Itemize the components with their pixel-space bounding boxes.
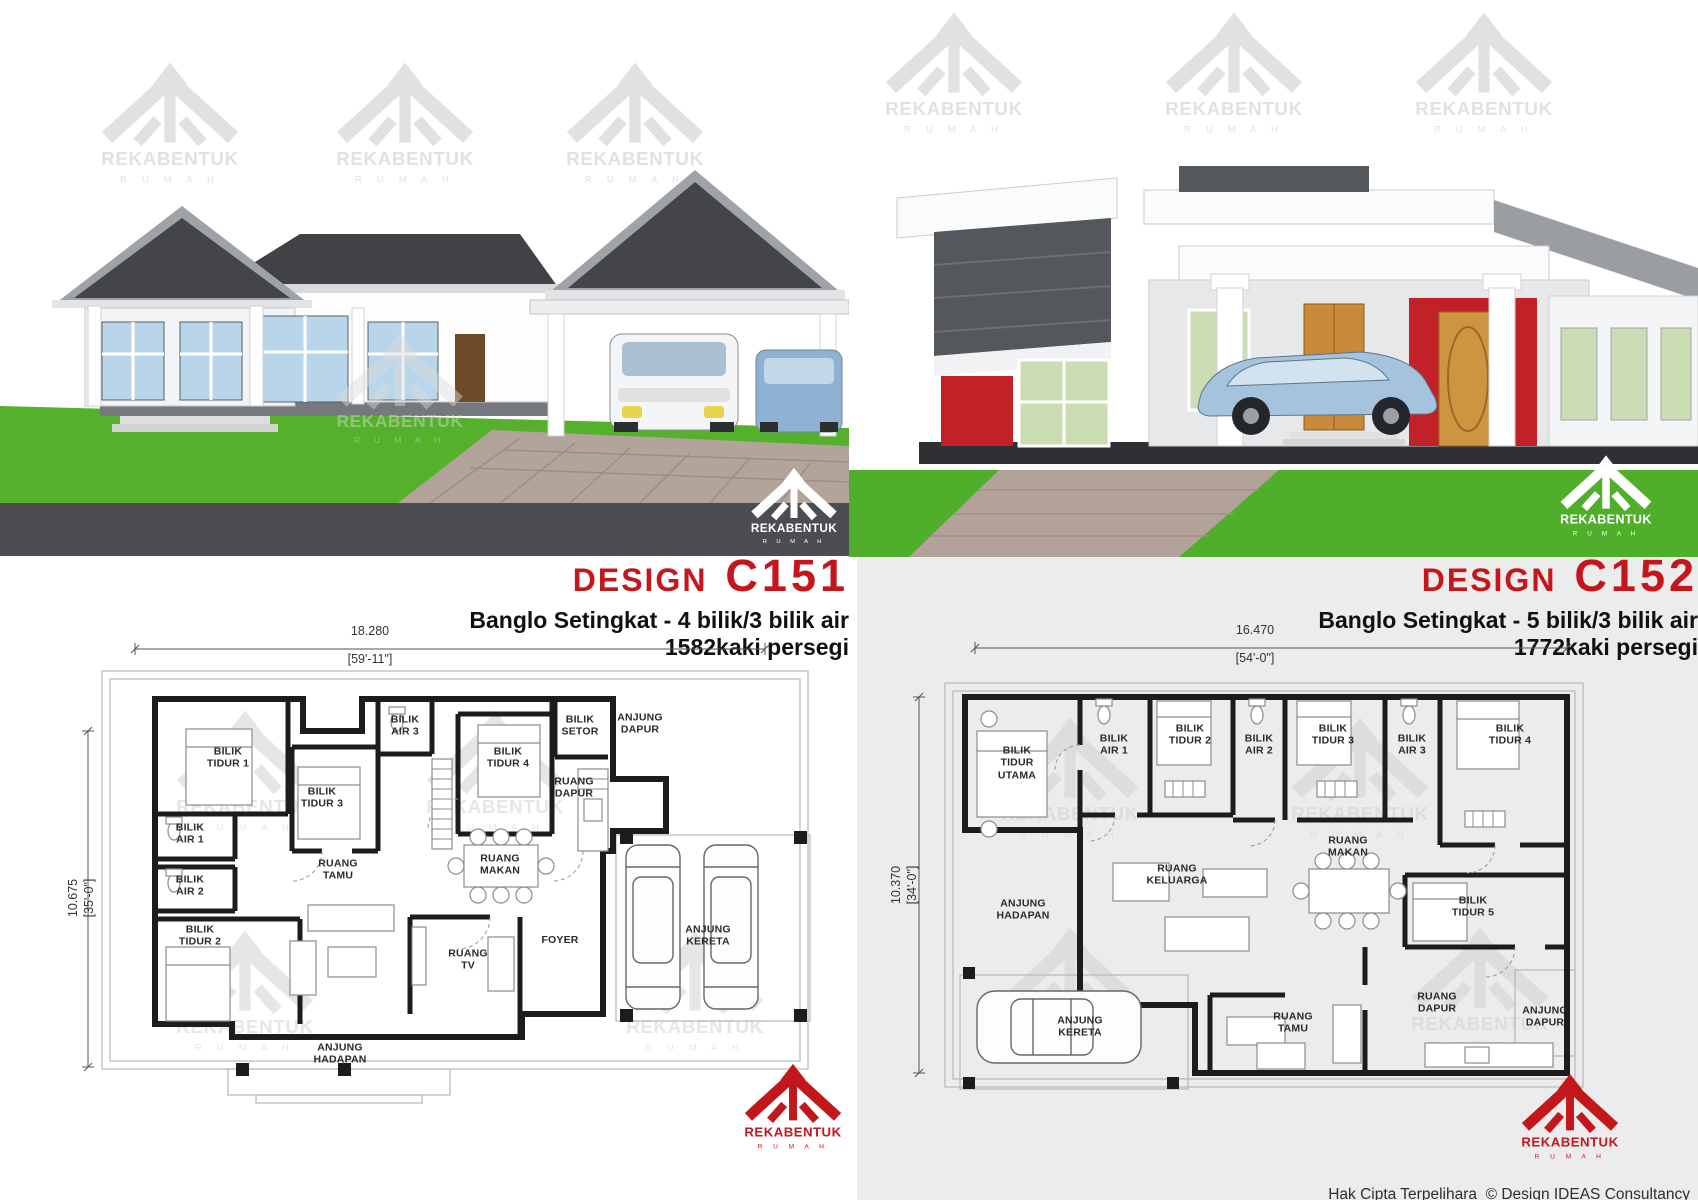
rekabentuk-watermark: REKABENTUKR U M A H [560, 60, 710, 190]
rekabentuk-watermark: REKABENTUKR U M A H [1159, 10, 1309, 140]
suv-car [610, 334, 738, 432]
room-label: ANJUNG DAPUR [613, 712, 667, 737]
room-label: RUANG KELUARGA [1142, 863, 1212, 888]
room-label: RUANG TV [445, 948, 491, 973]
room-label: RUANG MAKAN [474, 853, 526, 878]
blue-car [756, 350, 842, 432]
room-label: BILIK TIDUR UTAMA [992, 744, 1042, 781]
room-label: BILIK AIR 3 [382, 714, 428, 739]
room-label: BILIK TIDUR 3 [292, 786, 352, 811]
svg-text:R U M A H: R U M A H [120, 175, 220, 185]
dim-height: 10.370 [34'-0"] [888, 825, 922, 945]
floorplan-c152: REKABENTUKR U M A H REKABENTUKR U M A H … [865, 585, 1698, 1110]
rekabentuk-watermark: REKABENTUKR U M A H [1409, 10, 1559, 140]
dim-width-meters: 16.470 [1236, 623, 1274, 637]
svg-text:REKABENTUK: REKABENTUK [1415, 98, 1553, 119]
room-label: RUANG TAMU [1268, 1011, 1318, 1036]
dim-width-feet: [54'-0"] [1236, 651, 1275, 665]
svg-text:REKABENTUK: REKABENTUK [1560, 513, 1652, 527]
svg-text:REKABENTUK: REKABENTUK [101, 148, 239, 169]
svg-text:REKABENTUK: REKABENTUK [885, 98, 1023, 119]
design-word: DESIGN [573, 562, 708, 598]
room-label: BILIK TIDUR 4 [478, 746, 538, 771]
room-label: FOYER [530, 934, 590, 946]
room-label: BILIK TIDUR 4 [1480, 723, 1540, 748]
svg-text:REKABENTUK: REKABENTUK [1165, 98, 1303, 119]
design-code: C151 [725, 550, 849, 601]
render-grass-strip: REKABENTUKR U M A H [849, 470, 1698, 557]
panel-design-c152: REKABENTUKR U M A H REKABENTUKR U M A H … [849, 0, 1698, 1200]
svg-text:R U M A H: R U M A H [354, 435, 446, 445]
room-label: BILIK AIR 1 [167, 822, 213, 847]
room-label: ANJUNG KERETA [1052, 1015, 1108, 1040]
svg-text:R U M A H: R U M A H [758, 1144, 829, 1151]
room-label: ANJUNG KERETA [680, 924, 736, 949]
room-label: RUANG MAKAN [1322, 835, 1374, 860]
brochure-page: REKABENTUKR U M A H REKABENTUKR U M A H … [0, 0, 1698, 1200]
svg-text:REKABENTUK: REKABENTUK [744, 1124, 841, 1139]
room-label: BILIK SETOR [557, 714, 603, 739]
room-label: BILIK AIR 2 [1237, 733, 1281, 758]
svg-text:REKABENTUK: REKABENTUK [751, 522, 837, 535]
room-label: ANJUNG HADAPAN [309, 1042, 371, 1067]
rekabentuk-logo: REKABENTUKR U M A H [747, 459, 841, 555]
svg-text:REKABENTUK: REKABENTUK [336, 148, 474, 169]
rekabentuk-logo: REKABENTUKR U M A H [1556, 444, 1656, 550]
copyright-notice: Hak Cipta Terpelihara © Design IDEAS Con… [1328, 1142, 1690, 1200]
room-label: ANJUNG DAPUR [1518, 1005, 1572, 1030]
svg-text:REKABENTUK: REKABENTUK [337, 411, 464, 431]
room-label: BILIK TIDUR 5 [1443, 895, 1503, 920]
room-label: BILIK TIDUR 2 [1160, 723, 1220, 748]
dim-height: 10.675 [35'-0"] [65, 838, 99, 958]
room-label: BILIK TIDUR 2 [170, 924, 230, 949]
svg-text:REKABENTUK: REKABENTUK [566, 148, 704, 169]
room-label: BILIK AIR 3 [1390, 733, 1434, 758]
rekabentuk-watermark: REKABENTUKR U M A H [330, 60, 480, 190]
room-label: BILIK TIDUR 1 [198, 746, 258, 771]
svg-text:R U M A H: R U M A H [1434, 125, 1534, 135]
room-label: ANJUNG HADAPAN [993, 898, 1053, 923]
rekabentuk-watermark: REKABENTUKR U M A H [879, 10, 1029, 140]
dim-width-meters: 18.280 [351, 624, 389, 638]
room-label: BILIK AIR 2 [167, 874, 213, 899]
room-label: RUANG TAMU [313, 858, 363, 883]
room-label: BILIK TIDUR 3 [1303, 723, 1363, 748]
room-label: RUANG DAPUR [549, 776, 599, 801]
svg-text:R U M A H: R U M A H [763, 539, 826, 545]
dim-width-feet: [59'-11"] [348, 652, 393, 666]
render-footer-banner: REKABENTUKR U M A H [0, 503, 849, 556]
room-label: RUANG DAPUR [1412, 991, 1462, 1016]
room-label: BILIK AIR 1 [1092, 733, 1136, 758]
svg-text:R U M A H: R U M A H [1184, 125, 1284, 135]
svg-text:R U M A H: R U M A H [904, 125, 1004, 135]
rekabentuk-watermark: REKABENTUKR U M A H [95, 60, 245, 190]
svg-text:R U M A H: R U M A H [1573, 530, 1640, 537]
rekabentuk-logo-red: REKABENTUKR U M A H [740, 1062, 846, 1154]
svg-text:R U M A H: R U M A H [585, 175, 685, 185]
panel-design-c151: REKABENTUKR U M A H REKABENTUKR U M A H … [0, 0, 849, 1200]
svg-text:R U M A H: R U M A H [355, 175, 455, 185]
rekabentuk-watermark: REKABENTUKR U M A H [330, 330, 470, 450]
copyright-line-1: Hak Cipta Terpelihara © Design IDEAS Con… [1328, 1184, 1690, 1200]
